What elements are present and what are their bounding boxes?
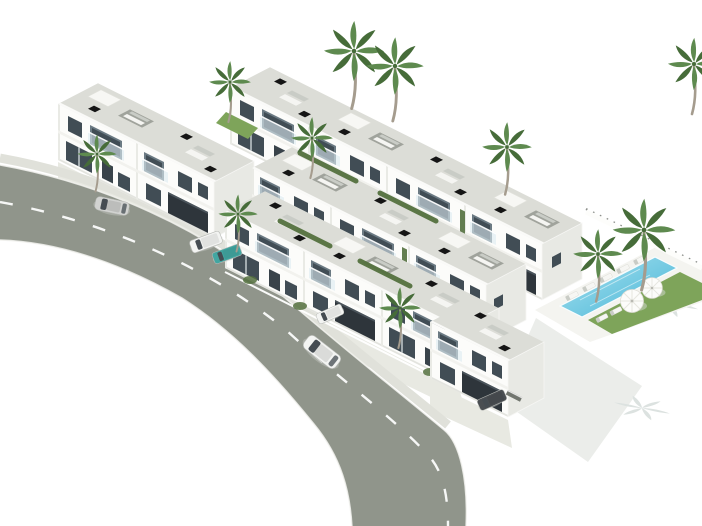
garden-bush (243, 276, 257, 284)
render-canvas (0, 0, 702, 526)
scene-svg (0, 0, 702, 526)
garden-bush (293, 302, 307, 310)
